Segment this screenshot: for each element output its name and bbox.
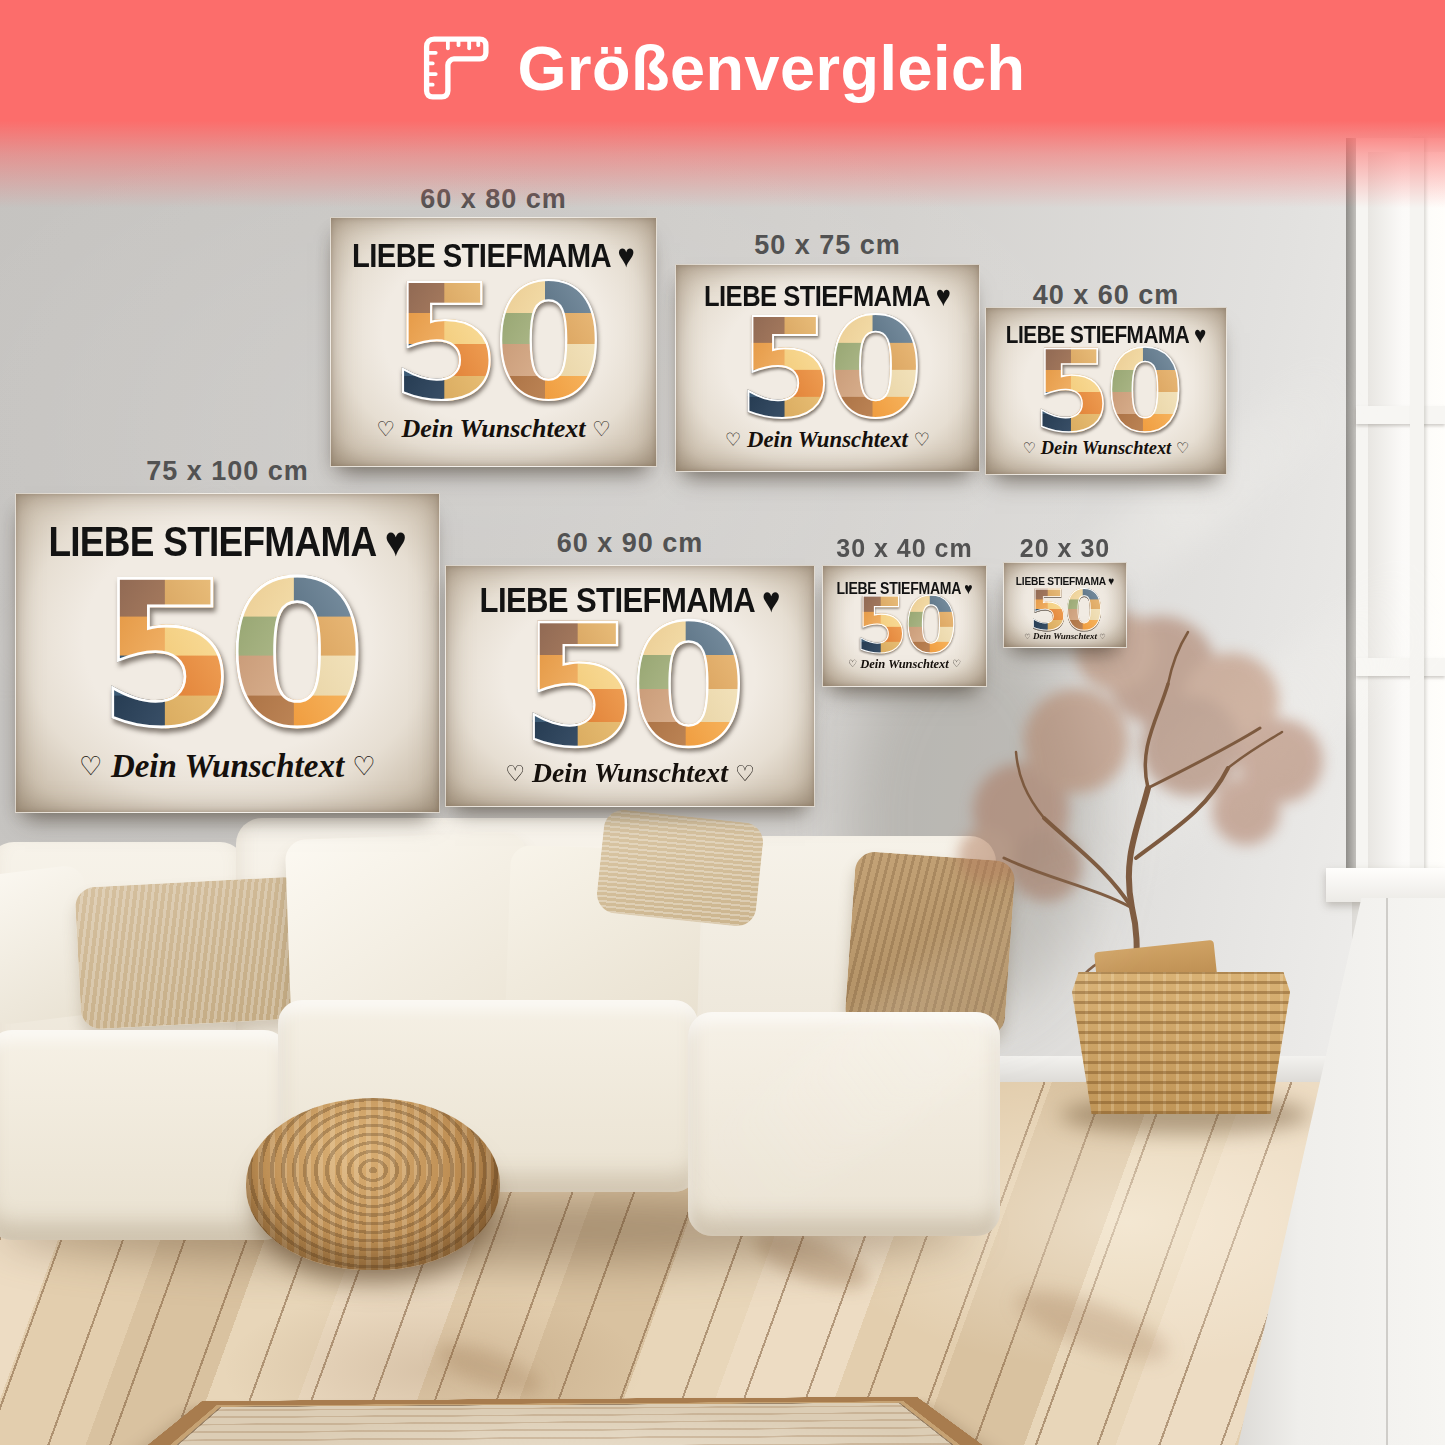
window-panes	[1368, 152, 1445, 880]
print-photo-number: 50	[738, 314, 918, 424]
cabinet-seam	[1386, 898, 1388, 1445]
window-muntin	[1356, 658, 1445, 676]
print-photo-number: 50	[391, 280, 597, 406]
size-label: 75 x 100 cm	[15, 456, 440, 487]
heart-icon: ♥	[964, 579, 972, 597]
window-muntin	[1410, 138, 1424, 880]
ruler-icon	[419, 30, 495, 106]
sofa-seat-cushion	[688, 1012, 1000, 1236]
size-label: 50 x 75 cm	[675, 230, 980, 261]
size-label: 30 x 40 cm	[822, 534, 987, 563]
sofa-seat-cushion	[0, 1030, 288, 1240]
wood-grain	[1008, 1277, 1174, 1375]
size-label: 60 x 80 cm	[330, 184, 657, 215]
canvas-print-40x60: LIEBE STIEFMAMA ♥ 50 ♡ Dein Wunschtext ♡	[985, 307, 1227, 475]
print-photo-number: 50	[1033, 347, 1179, 437]
print-photo-number: 50	[97, 575, 357, 735]
wicker-basket	[1072, 972, 1290, 1114]
pillow	[74, 876, 309, 1030]
canvas-print-60x90: LIEBE STIEFMAMA ♥ 50 ♡ Dein Wunschtext ♡	[445, 565, 815, 807]
canvas-print-20x30: LIEBE STIEFMAMA ♥ 50 ♡ Dein Wunschtext ♡	[1003, 562, 1127, 648]
heart-icon: ♥	[936, 280, 951, 312]
window-muntin	[1356, 406, 1445, 424]
print-photo-number: 50	[1029, 588, 1101, 632]
wicker-pouf	[246, 1098, 500, 1270]
print-photo-number: 50	[855, 596, 954, 657]
heart-icon: ♥	[385, 518, 407, 565]
size-comparison-image: 60 x 80 cm LIEBE STIEFMAMA ♥ 50 ♡ Dein W…	[0, 0, 1445, 1445]
pillow	[595, 808, 765, 928]
pillow	[285, 832, 531, 1022]
page-title: Größenvergleich	[517, 32, 1025, 104]
sofa	[0, 808, 1000, 1248]
heart-icon: ♥	[618, 237, 635, 273]
canvas-print-30x40: LIEBE STIEFMAMA ♥ 50 ♡ Dein Wunschtext ♡	[822, 565, 987, 687]
print-photo-number: 50	[521, 620, 740, 754]
header-banner: Größenvergleich	[0, 0, 1445, 208]
heart-icon: ♥	[1108, 576, 1114, 589]
header-content: Größenvergleich	[0, 0, 1445, 135]
canvas-print-50x75: LIEBE STIEFMAMA ♥ 50 ♡ Dein Wunschtext ♡	[675, 264, 980, 472]
wood-grain	[431, 1334, 546, 1404]
heart-icon: ♥	[762, 580, 780, 620]
size-label: 60 x 90 cm	[445, 528, 815, 559]
canvas-print-60x80: LIEBE STIEFMAMA ♥ 50 ♡ Dein Wunschtext ♡	[330, 217, 657, 467]
heart-icon: ♥	[1194, 321, 1206, 347]
canvas-print-75x100: LIEBE STIEFMAMA ♥ 50 ♡ Dein Wunschtext ♡	[15, 493, 440, 813]
